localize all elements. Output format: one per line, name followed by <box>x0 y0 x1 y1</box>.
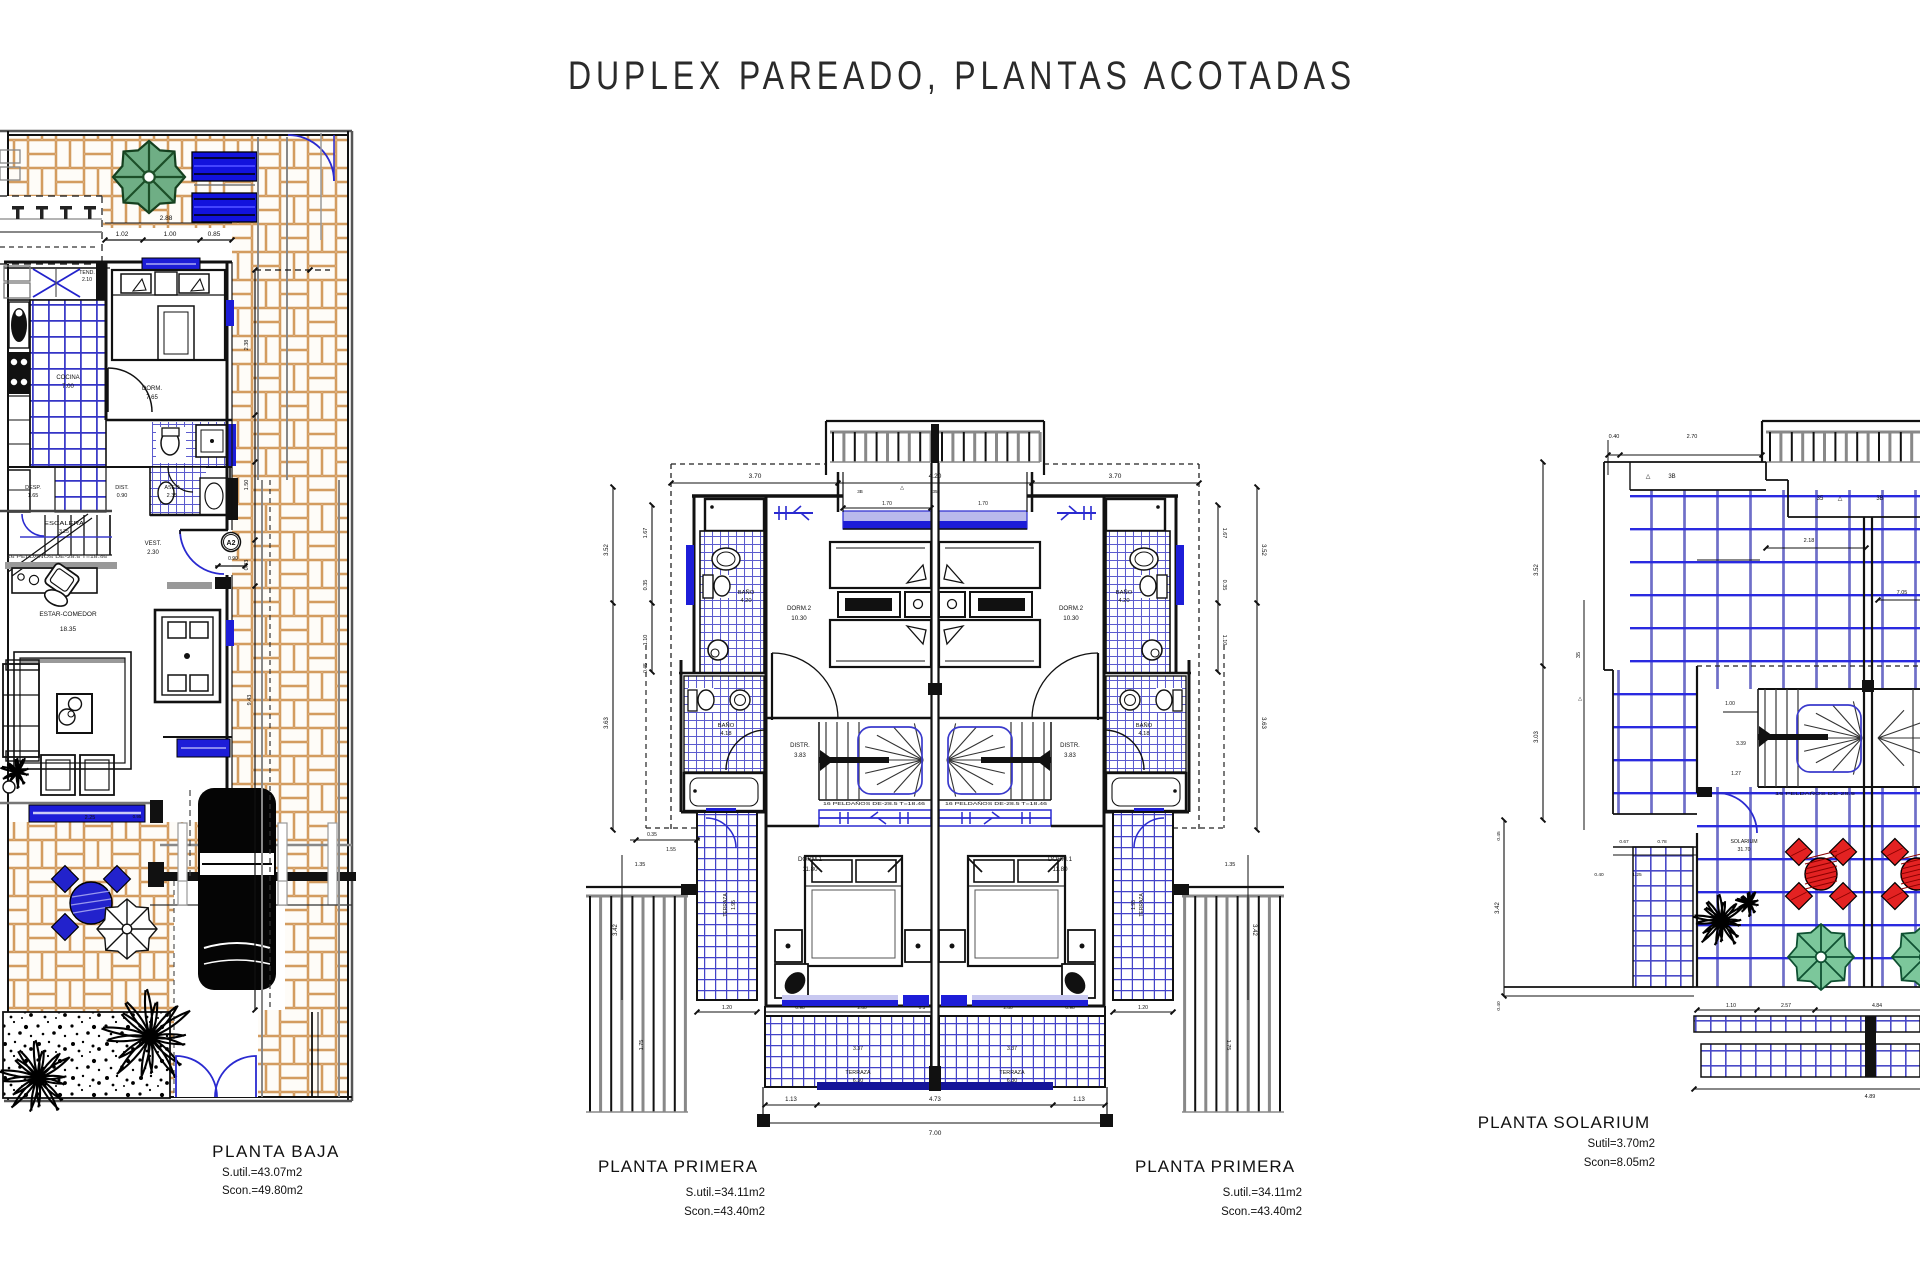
svg-text:3.03: 3.03 <box>1534 731 1540 743</box>
svg-text:4.20: 4.20 <box>929 473 942 480</box>
svg-text:0.85: 0.85 <box>208 231 221 238</box>
svg-text:10.30: 10.30 <box>791 615 807 622</box>
svg-text:1.13: 1.13 <box>1073 1097 1085 1103</box>
svg-text:2.35: 2.35 <box>167 493 178 499</box>
svg-text:Scon.=49.80m2: Scon.=49.80m2 <box>222 1185 303 1197</box>
svg-text:BAÑO: BAÑO <box>1136 722 1153 729</box>
svg-text:2.80: 2.80 <box>1003 1005 1013 1011</box>
svg-text:0.95: 0.95 <box>133 814 142 819</box>
svg-text:DISTR.: DISTR. <box>790 743 810 749</box>
svg-text:1.02: 1.02 <box>116 231 129 238</box>
svg-text:16 PELDAÑOS DE-28.5 T=18.46: 16 PELDAÑOS DE-28.5 T=18.46 <box>945 800 1048 806</box>
svg-text:3.70: 3.70 <box>1109 473 1122 480</box>
svg-text:35: 35 <box>932 489 938 494</box>
svg-text:1.10: 1.10 <box>1221 635 1227 646</box>
svg-text:1.75: 1.75 <box>1225 1040 1231 1051</box>
svg-text:0.40: 0.40 <box>1609 434 1620 440</box>
svg-text:2.70: 2.70 <box>1687 434 1698 440</box>
svg-text:1.00: 1.00 <box>164 231 177 238</box>
svg-text:11.80: 11.80 <box>802 866 818 873</box>
svg-text:1.67: 1.67 <box>643 528 649 539</box>
svg-text:6.30: 6.30 <box>853 1078 864 1084</box>
svg-text:1.75: 1.75 <box>639 1040 645 1051</box>
svg-text:35: 35 <box>1817 496 1824 502</box>
svg-text:0.35: 0.35 <box>647 832 657 838</box>
svg-text:PLANTA PRIMERA: PLANTA PRIMERA <box>598 1157 758 1176</box>
svg-text:0.93: 0.93 <box>244 560 250 571</box>
svg-text:0.67: 0.67 <box>1619 839 1629 845</box>
svg-text:DIST.: DIST. <box>115 485 129 491</box>
svg-text:S.util.=43.07m2: S.util.=43.07m2 <box>222 1167 302 1179</box>
svg-text:31.70: 31.70 <box>1738 847 1751 853</box>
svg-text:2.25: 2.25 <box>85 815 96 821</box>
svg-text:16 PELDAÑOS DE-28.5 T=18.46: 16 PELDAÑOS DE-28.5 T=18.46 <box>823 800 926 806</box>
svg-text:1.25: 1.25 <box>1632 872 1642 878</box>
svg-text:3B: 3B <box>857 489 863 494</box>
svg-text:DUPLEX PAREADO, PLANTAS ACO: DUPLEX PAREADO, PLANTAS ACOTADAS <box>568 54 1356 98</box>
svg-text:4.89: 4.89 <box>1865 1094 1876 1100</box>
svg-text:4.20: 4.20 <box>740 598 751 604</box>
svg-text:0.90: 0.90 <box>117 493 128 499</box>
svg-text:3.83: 3.83 <box>1064 753 1076 759</box>
svg-text:4.73: 4.73 <box>929 1097 941 1103</box>
svg-text:3.52: 3.52 <box>1260 544 1266 556</box>
svg-text:1.00: 1.00 <box>1725 701 1735 707</box>
svg-text:7.65: 7.65 <box>146 395 158 401</box>
svg-text:0.35: 0.35 <box>1221 580 1227 591</box>
svg-text:7.00: 7.00 <box>929 1130 942 1137</box>
svg-text:PLANTA BAJA: PLANTA BAJA <box>212 1142 340 1161</box>
svg-text:1.20: 1.20 <box>722 1005 732 1011</box>
svg-text:3.70: 3.70 <box>749 473 762 480</box>
svg-text:DORM.2: DORM.2 <box>787 605 812 612</box>
svg-text:0.45: 0.45 <box>643 663 649 673</box>
svg-text:Scon.=43.40m2: Scon.=43.40m2 <box>1221 1206 1302 1218</box>
svg-text:3.52: 3.52 <box>1534 564 1540 576</box>
svg-text:PLANTA PRIMERA: PLANTA PRIMERA <box>1135 1157 1295 1176</box>
svg-text:SOLARIUM: SOLARIUM <box>1730 839 1757 845</box>
svg-text:3.42: 3.42 <box>613 924 619 936</box>
svg-text:4.84: 4.84 <box>1872 1003 1882 1009</box>
svg-text:1.27: 1.27 <box>1731 771 1741 777</box>
svg-text:BAÑO: BAÑO <box>718 722 735 729</box>
svg-text:16 PELDAÑOS DE-28.5: 16 PELDAÑOS DE-28.5 <box>1775 790 1856 796</box>
svg-text:4.20: 4.20 <box>1118 598 1129 604</box>
svg-text:0.40: 0.40 <box>1594 872 1604 878</box>
svg-text:Sutil=3.70m2: Sutil=3.70m2 <box>1588 1138 1655 1150</box>
svg-text:DISTR.: DISTR. <box>1060 743 1080 749</box>
svg-text:△: △ <box>1646 474 1651 480</box>
svg-text:3.42: 3.42 <box>1495 902 1501 914</box>
svg-text:3.63: 3.63 <box>1260 717 1266 729</box>
svg-text:△: △ <box>1838 496 1843 502</box>
svg-text:TERRAZA: TERRAZA <box>999 1070 1025 1076</box>
svg-text:VEST.: VEST. <box>145 541 162 547</box>
svg-text:11.80: 11.80 <box>1052 866 1068 873</box>
svg-text:0.98: 0.98 <box>795 1005 805 1011</box>
svg-text:PLANTA SOLARIUM: PLANTA SOLARIUM <box>1478 1113 1650 1132</box>
svg-text:TEND.: TEND. <box>79 270 95 276</box>
svg-text:1.65: 1.65 <box>28 493 39 499</box>
svg-text:1.35: 1.35 <box>635 862 646 868</box>
svg-text:16 PELDAÑOS DE-28.5 T=18.46: 16 PELDAÑOS DE-28.5 T=18.46 <box>7 553 108 559</box>
svg-text:1.67: 1.67 <box>1221 528 1227 539</box>
svg-text:DORM.1: DORM.1 <box>1048 856 1073 863</box>
svg-text:A2: A2 <box>227 540 236 547</box>
svg-text:3.42: 3.42 <box>1251 924 1257 936</box>
svg-text:3.37: 3.37 <box>1007 1046 1017 1052</box>
svg-text:DORM.2: DORM.2 <box>1059 605 1084 612</box>
svg-text:ASEO: ASEO <box>164 485 180 491</box>
svg-text:6.30: 6.30 <box>1007 1078 1018 1084</box>
svg-text:1.55: 1.55 <box>666 847 676 853</box>
svg-text:35: 35 <box>1576 652 1582 658</box>
svg-text:△: △ <box>1578 696 1582 702</box>
svg-text:3.25: 3.25 <box>59 529 69 535</box>
svg-text:0.5: 0.5 <box>919 1005 926 1011</box>
svg-text:2.18: 2.18 <box>1804 538 1815 544</box>
svg-text:1.13: 1.13 <box>785 1097 797 1103</box>
svg-text:1.10: 1.10 <box>1726 1003 1736 1009</box>
svg-text:TERRAZA: TERRAZA <box>723 893 729 917</box>
svg-text:S.util.=34.11m2: S.util.=34.11m2 <box>1223 1187 1302 1199</box>
svg-text:2.88: 2.88 <box>160 215 173 222</box>
svg-text:3.52: 3.52 <box>604 544 610 556</box>
svg-text:10.30: 10.30 <box>1063 615 1079 622</box>
svg-text:2.30: 2.30 <box>147 550 159 556</box>
svg-text:0.90: 0.90 <box>228 556 238 562</box>
svg-text:7.00: 7.00 <box>62 384 74 390</box>
svg-text:1.35: 1.35 <box>1225 862 1236 868</box>
svg-text:TERRAZA: TERRAZA <box>845 1070 871 1076</box>
svg-text:3B: 3B <box>1668 474 1675 480</box>
svg-text:0.40: 0.40 <box>1496 1001 1502 1011</box>
svg-text:DORM.1: DORM.1 <box>798 856 823 863</box>
svg-text:2.38: 2.38 <box>244 340 250 351</box>
svg-text:3B: 3B <box>1876 496 1883 502</box>
svg-text:1.70: 1.70 <box>978 501 988 507</box>
svg-text:1.70: 1.70 <box>882 501 892 507</box>
svg-text:3.63: 3.63 <box>604 717 610 729</box>
svg-text:ESTAR-COMEDOR: ESTAR-COMEDOR <box>39 611 97 618</box>
svg-text:Scon.=43.40m2: Scon.=43.40m2 <box>684 1206 765 1218</box>
svg-text:2.10: 2.10 <box>82 277 92 283</box>
svg-text:3.37: 3.37 <box>853 1046 863 1052</box>
svg-text:0.35: 0.35 <box>643 580 649 591</box>
svg-text:1.10: 1.10 <box>643 635 649 646</box>
svg-text:7.05: 7.05 <box>1897 590 1908 596</box>
svg-text:Scon=8.05m2: Scon=8.05m2 <box>1584 1157 1655 1169</box>
svg-text:1.50: 1.50 <box>244 480 250 491</box>
svg-text:1.95: 1.95 <box>1131 900 1137 910</box>
svg-text:0.98: 0.98 <box>1065 1005 1075 1011</box>
svg-text:0.78: 0.78 <box>1657 839 1667 845</box>
svg-text:BAÑO: BAÑO <box>738 589 755 596</box>
svg-text:2.57: 2.57 <box>1781 1003 1791 1009</box>
svg-text:ESCALERA: ESCALERA <box>44 521 85 527</box>
svg-text:4.18: 4.18 <box>720 731 731 737</box>
svg-text:COCINA: COCINA <box>56 375 79 381</box>
svg-text:2.80: 2.80 <box>857 1005 867 1011</box>
svg-text:1.95: 1.95 <box>731 900 737 910</box>
svg-text:DORM.: DORM. <box>142 386 162 392</box>
svg-text:△: △ <box>900 485 904 491</box>
svg-text:S.util.=34.11m2: S.util.=34.11m2 <box>686 1187 765 1199</box>
svg-text:BAÑO: BAÑO <box>1116 589 1133 596</box>
svg-text:DESP.: DESP. <box>25 485 41 491</box>
svg-text:1.20: 1.20 <box>1138 1005 1148 1011</box>
svg-text:3.83: 3.83 <box>794 753 806 759</box>
svg-text:TERRAZA: TERRAZA <box>1139 893 1145 917</box>
svg-text:4.18: 4.18 <box>1138 731 1149 737</box>
svg-text:18.35: 18.35 <box>60 626 77 633</box>
svg-text:3.39: 3.39 <box>1736 741 1746 747</box>
svg-text:0.45: 0.45 <box>1496 831 1502 841</box>
svg-text:9.43: 9.43 <box>247 695 253 706</box>
